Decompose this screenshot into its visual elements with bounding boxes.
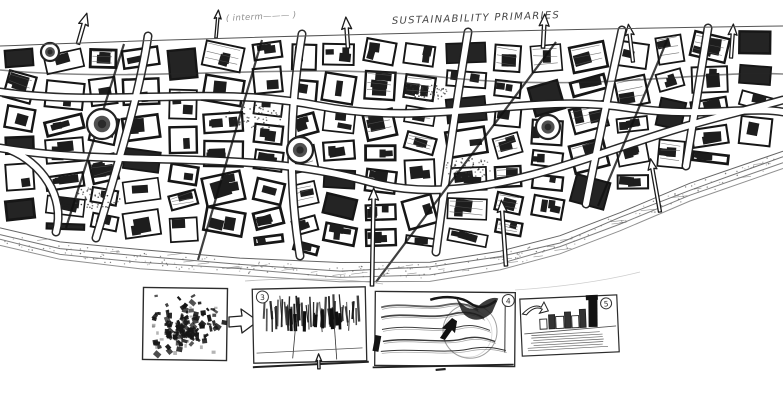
thumbnail-tower-section: 3 [251, 287, 369, 370]
thumbnail-badge: 4 [506, 297, 511, 306]
thumbnail-strip: 3 4 5 [143, 287, 620, 371]
annotation-left: ( interm——— ) [226, 10, 297, 24]
thumbnail-waterfront-perspective: 5 [520, 294, 619, 356]
thumbnail-figure-ground [143, 287, 228, 360]
sketch-page: ( interm——— ) SUSTAINABILITY PRIMARIES 3 [0, 0, 783, 400]
thumbnail-landscape-flows: 4 [372, 291, 515, 370]
masterplan-sketch-canvas: ( interm——— ) SUSTAINABILITY PRIMARIES 3 [0, 0, 783, 400]
thumbnail-badge: 3 [260, 293, 265, 302]
annotation-right: SUSTAINABILITY PRIMARIES [392, 10, 560, 27]
thumbnail-badge: 5 [604, 299, 609, 308]
